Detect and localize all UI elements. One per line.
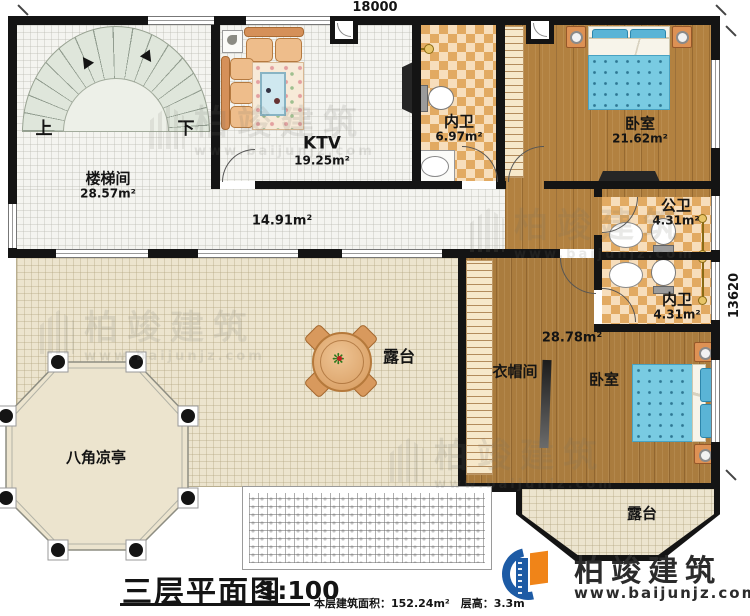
room-name: 内卫: [435, 113, 482, 130]
shower-head-icon: [424, 44, 434, 54]
title-underline: [120, 603, 310, 606]
window: [148, 16, 214, 25]
nightstand: [566, 26, 586, 48]
wall-segment: [458, 249, 560, 258]
sofa-backrest: [244, 27, 304, 37]
room-label-ktv: KTV 19.25m²: [294, 134, 350, 167]
room-area: 4.31m²: [653, 309, 700, 323]
plant-centerpiece: ❋: [332, 350, 345, 368]
bedroom-bottom-area-label: 28.78m²: [542, 332, 602, 347]
room-name: 卧室: [612, 115, 668, 132]
column: [330, 16, 358, 44]
lower-roof: [242, 486, 492, 570]
logo-swoosh: [492, 538, 564, 610]
wardrobe: [466, 260, 493, 475]
window: [342, 249, 442, 258]
wall-segment: [211, 16, 220, 189]
room-label-stair-hall: 楼梯间 28.57m²: [80, 170, 136, 201]
wall-segment: [496, 181, 506, 189]
wall-segment: [458, 258, 466, 492]
room-label-public-bath: 公卫 4.31m²: [652, 197, 699, 228]
wall-segment: [496, 16, 505, 189]
room-label-bath-top: 内卫 6.97m²: [435, 113, 482, 144]
wall-segment: [412, 16, 421, 189]
room-label-terrace: 露台: [383, 348, 415, 366]
wall-segment: [594, 252, 720, 260]
column: [526, 16, 554, 44]
plan-info: 本层建筑面积：152.24m² 层高：3.3m: [314, 595, 525, 611]
company-logo-url: www.baijunjz.com: [574, 584, 750, 602]
window: [711, 60, 720, 148]
sofa-backrest: [221, 56, 230, 130]
window: [711, 262, 720, 320]
stair-down-label: 下: [178, 120, 195, 140]
window: [8, 204, 17, 248]
window: [198, 249, 298, 258]
dimension-right: 13620: [727, 273, 742, 318]
dimension-tick: [725, 25, 736, 36]
room-area: 21.62m²: [612, 133, 668, 147]
room-name: KTV: [294, 134, 350, 154]
sofa-cushion: [230, 106, 254, 128]
shower-rail: [702, 258, 704, 300]
logo-building-blue: [516, 558, 528, 594]
window: [711, 196, 720, 250]
company-logo-icon: [502, 542, 566, 606]
room-label-bedroom-bottom: 卧室: [589, 371, 619, 388]
shower-rail: [702, 219, 704, 253]
window: [246, 16, 330, 25]
sink-basin: [421, 156, 449, 177]
toilet-bowl: [428, 86, 454, 110]
room-area: 4.31m²: [652, 215, 699, 229]
pavilion: [2, 326, 194, 564]
wall-segment: [594, 324, 720, 332]
wall-segment: [594, 189, 602, 197]
dimension-tick: [725, 469, 736, 480]
wall-segment: [8, 16, 720, 25]
table-lamp: [227, 35, 237, 45]
wall-segment: [255, 181, 413, 189]
room-label-bedroom-top: 卧室 21.62m²: [612, 115, 668, 146]
logo-building-orange: [530, 551, 548, 586]
dimension-tick: [715, 4, 726, 15]
room-name: 内卫: [653, 291, 700, 308]
nightstand: [672, 26, 692, 48]
toilet-bowl: [651, 259, 676, 286]
room-name: 楼梯间: [80, 170, 136, 187]
sofa-cushion: [275, 38, 302, 62]
table-item: [266, 88, 271, 93]
room-area: 6.97m²: [435, 131, 482, 145]
dimension-tick: [17, 4, 28, 15]
room-name: 公卫: [652, 197, 699, 214]
room-label-bay-terrace: 露台: [627, 505, 657, 522]
dimension-top: 18000: [340, 0, 410, 15]
room-label-bath-right: 内卫 4.31m²: [653, 291, 700, 322]
hallway-area-label: 14.91m²: [252, 215, 312, 230]
window: [711, 360, 720, 442]
sofa-cushion: [230, 82, 254, 104]
table-item: [274, 98, 280, 104]
bed-duvet: [632, 364, 694, 442]
room-label-cloakroom: 衣帽间: [492, 363, 537, 380]
wall-segment: [412, 181, 462, 189]
window: [56, 249, 148, 258]
wall-segment: [544, 181, 720, 189]
stair-up-label: 上: [36, 120, 53, 140]
room-label-pavilion: 八角凉亭: [66, 449, 126, 466]
floor-plan: 18000 13620: [0, 0, 750, 616]
sofa-cushion: [230, 58, 254, 80]
roof-tile-pattern: [249, 493, 485, 563]
room-area: 19.25m²: [294, 154, 350, 168]
room-area: 28.57m²: [80, 188, 136, 202]
coffee-table: [260, 72, 286, 116]
bed-duvet: [588, 55, 670, 110]
sink-basin: [609, 262, 643, 288]
